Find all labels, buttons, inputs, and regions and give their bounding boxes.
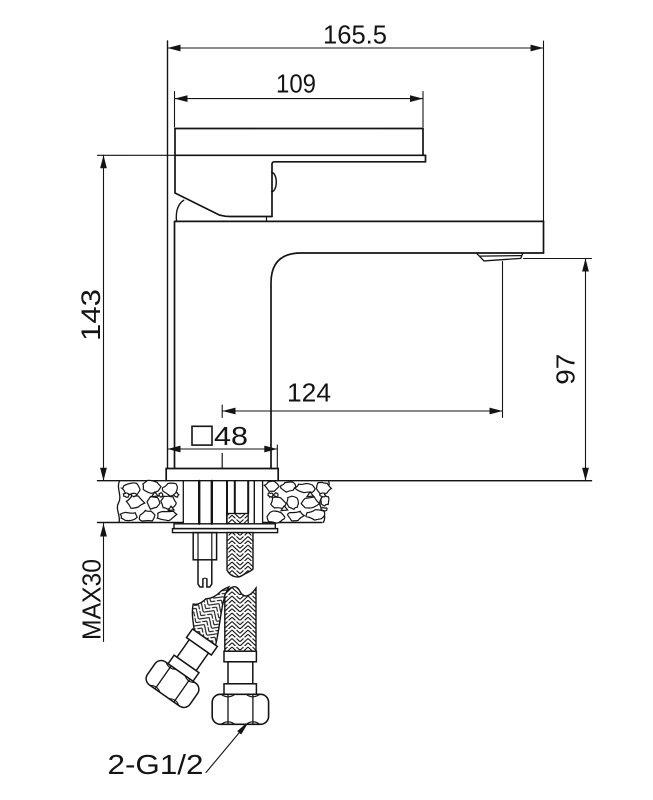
svg-text:124: 124 — [287, 378, 331, 408]
svg-text:143: 143 — [76, 289, 106, 341]
svg-text:2-G1/2: 2-G1/2 — [108, 749, 204, 780]
svg-text:48: 48 — [214, 421, 248, 451]
svg-text:165.5: 165.5 — [323, 20, 387, 50]
svg-text:97: 97 — [551, 354, 581, 385]
svg-text:109: 109 — [276, 69, 316, 99]
svg-text:MAX30: MAX30 — [77, 559, 107, 640]
